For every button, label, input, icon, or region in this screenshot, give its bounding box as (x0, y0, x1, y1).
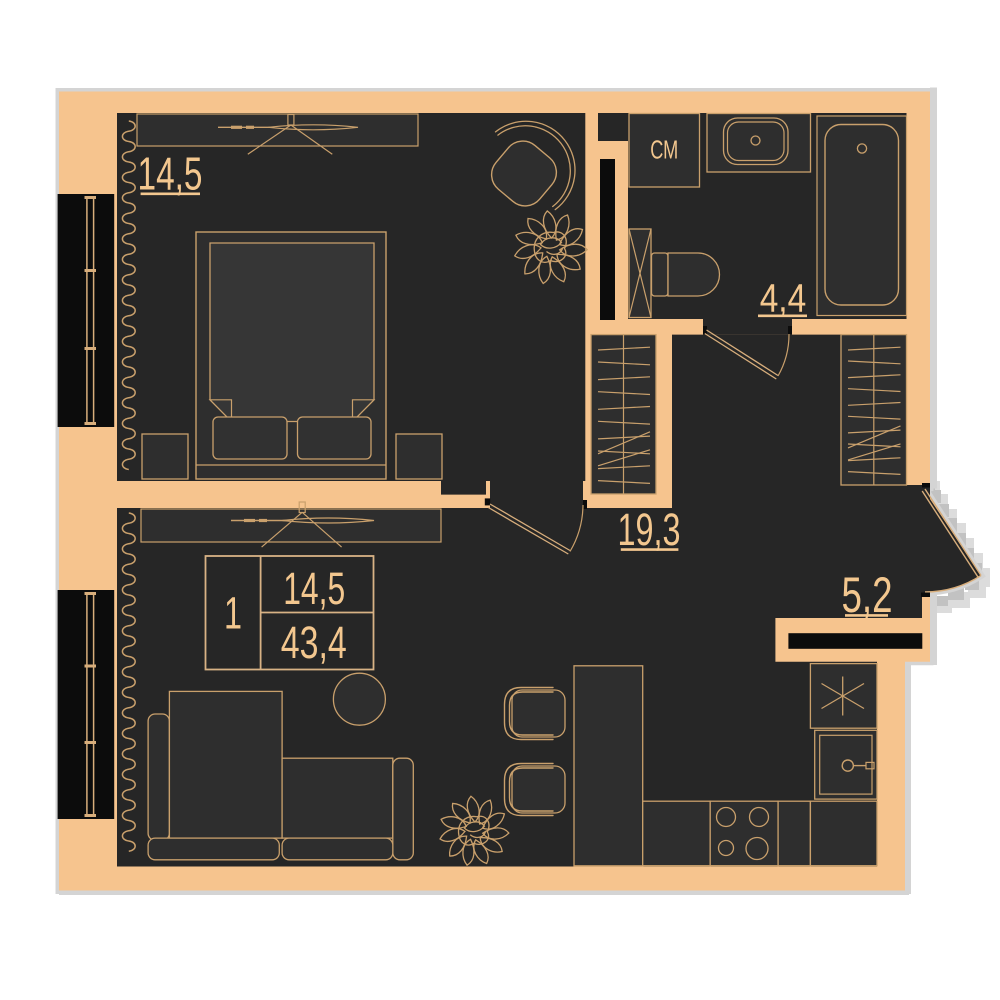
svg-text:1: 1 (224, 588, 242, 639)
svg-text:19,3: 19,3 (618, 504, 681, 555)
svg-text:СМ: СМ (650, 135, 678, 165)
svg-text:14,5: 14,5 (283, 563, 345, 614)
svg-text:14,5: 14,5 (138, 148, 203, 200)
svg-text:43,4: 43,4 (281, 617, 347, 668)
svg-text:4,4: 4,4 (760, 277, 807, 321)
